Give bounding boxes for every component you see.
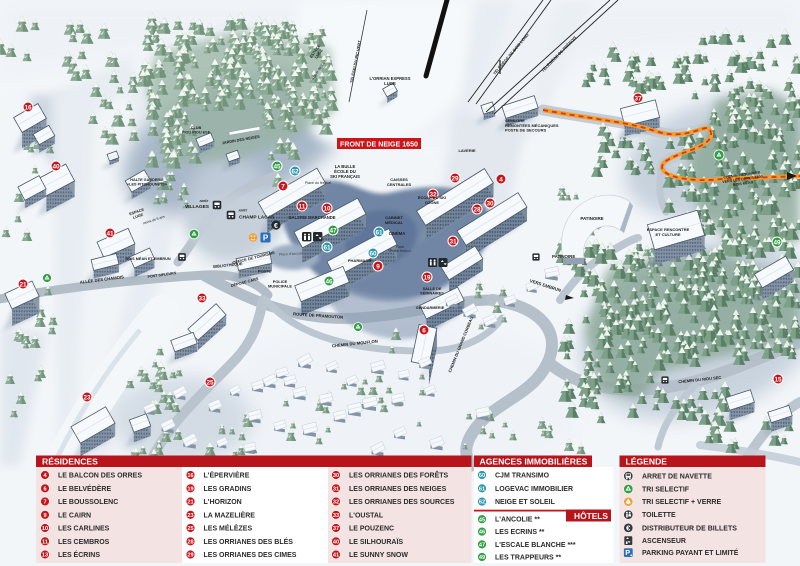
svg-text:21: 21 <box>187 500 193 506</box>
svg-text:6: 6 <box>422 327 426 334</box>
svg-text:32: 32 <box>333 500 339 506</box>
svg-text:BOIS MÉAN ET EMBRUN: BOIS MÉAN ET EMBRUN <box>125 256 170 261</box>
svg-text:L'HORIZON: L'HORIZON <box>204 499 242 506</box>
svg-text:37: 37 <box>634 95 642 102</box>
svg-text:LE POUZENC: LE POUZENC <box>349 526 394 533</box>
svg-text:POSTE: POSTE <box>258 269 272 274</box>
svg-text:60: 60 <box>369 250 377 257</box>
svg-text:LES ORRIANES DES NEIGES: LES ORRIANES DES NEIGES <box>349 486 447 493</box>
svg-text:37: 37 <box>333 526 339 532</box>
svg-text:62: 62 <box>479 500 485 506</box>
svg-text:47: 47 <box>479 543 485 549</box>
svg-text:PATINOIRE: PATINOIRE <box>580 216 603 221</box>
svg-text:4: 4 <box>499 176 503 183</box>
svg-text:NEIGE ET SOLEIL: NEIGE ET SOLEIL <box>495 499 556 506</box>
svg-text:61: 61 <box>479 486 485 492</box>
svg-text:16: 16 <box>187 473 193 479</box>
svg-text:7: 7 <box>43 500 46 506</box>
svg-text:€: € <box>274 223 278 230</box>
svg-text:HALTE GARDERIE«LES PITCHOUNETS: HALTE GARDERIE«LES PITCHOUNETS» <box>127 178 167 187</box>
svg-text:31: 31 <box>449 238 457 245</box>
svg-text:L'ESCALE BLANCHE ***: L'ESCALE BLANCHE *** <box>495 542 576 549</box>
svg-text:GENDARMERIE: GENDARMERIE <box>416 306 445 310</box>
svg-text:15: 15 <box>774 376 782 383</box>
svg-text:28: 28 <box>187 539 193 545</box>
svg-text:LES ORRIANES DES BLÉS: LES ORRIANES DES BLÉS <box>204 537 294 546</box>
svg-text:SALLE DESÉMINAIRES: SALLE DESÉMINAIRES <box>420 287 444 296</box>
svg-text:41: 41 <box>333 553 339 559</box>
svg-text:45: 45 <box>479 517 485 523</box>
svg-text:46: 46 <box>479 530 485 536</box>
svg-text:16: 16 <box>24 104 32 111</box>
svg-text:LE CAIRN: LE CAIRN <box>58 512 91 519</box>
svg-text:60: 60 <box>479 473 485 479</box>
svg-text:LES MÉLÈZES: LES MÉLÈZES <box>204 524 253 533</box>
svg-text:L'ÉPERVIÈRE: L'ÉPERVIÈRE <box>204 471 250 480</box>
svg-text:LE SUNNY SNOW: LE SUNNY SNOW <box>349 552 408 559</box>
svg-text:L'OUSTAL: L'OUSTAL <box>349 512 384 519</box>
svg-text:LE BELVÉDÈRE: LE BELVÉDÈRE <box>58 484 111 493</box>
svg-text:CJM TRANSIMO: CJM TRANSIMO <box>495 473 550 480</box>
svg-text:13: 13 <box>42 553 48 559</box>
svg-text:DISTRIBUTEUR DE BILLETS: DISTRIBUTEUR DE BILLETS <box>642 525 737 532</box>
svg-text:9: 9 <box>43 513 46 519</box>
svg-text:62: 62 <box>291 168 299 175</box>
svg-text:TRI SELECTIF: TRI SELECTIF <box>642 487 690 494</box>
svg-text:61: 61 <box>323 244 331 251</box>
svg-text:33: 33 <box>198 295 206 302</box>
svg-text:49: 49 <box>773 239 781 246</box>
svg-text:30: 30 <box>486 200 494 207</box>
svg-text:HÔTELS: HÔTELS <box>574 510 608 521</box>
svg-text:LOGEVAC IMMOBILIER: LOGEVAC IMMOBILIER <box>495 486 573 493</box>
svg-text:LES ORRIANES DES CIMES: LES ORRIANES DES CIMES <box>204 552 297 559</box>
svg-text:7: 7 <box>281 183 285 190</box>
svg-text:40: 40 <box>333 539 339 545</box>
svg-text:LES ECRINS **: LES ECRINS ** <box>495 529 545 536</box>
svg-text:P: P <box>625 548 630 557</box>
svg-text:LES ÉCRINS: LES ÉCRINS <box>58 550 100 559</box>
svg-text:6: 6 <box>43 486 46 492</box>
svg-text:RÉSIDENCES: RÉSIDENCES <box>42 457 98 467</box>
svg-text:11: 11 <box>299 203 306 210</box>
svg-text:PARKING PAYANT ET LIMITÉ: PARKING PAYANT ET LIMITÉ <box>642 548 739 557</box>
svg-text:CHAMP LACAS: CHAMP LACAS <box>239 215 275 221</box>
svg-text:29: 29 <box>451 175 459 182</box>
svg-text:21: 21 <box>19 281 27 288</box>
svg-text:31: 31 <box>333 486 339 492</box>
svg-text:CABINETMÉDICAL: CABINETMÉDICAL <box>385 215 404 225</box>
svg-text:30: 30 <box>333 473 339 479</box>
svg-text:PHARMACIE: PHARMACIE <box>348 258 373 263</box>
svg-text:LES CARLINES: LES CARLINES <box>58 526 110 533</box>
svg-text:LES TRAPPEURS **: LES TRAPPEURS ** <box>495 555 561 562</box>
svg-text:10: 10 <box>42 526 48 532</box>
svg-text:23: 23 <box>83 394 91 401</box>
svg-text:40: 40 <box>52 163 60 170</box>
svg-text:19: 19 <box>187 486 193 492</box>
svg-text:LAVERIE: LAVERIE <box>458 148 475 153</box>
svg-text:TOILETTE: TOILETTE <box>642 512 676 519</box>
svg-text:9: 9 <box>376 263 380 270</box>
svg-text:FRONT DE NEIGE 1650: FRONT DE NEIGE 1650 <box>340 139 418 148</box>
svg-text:LE BALCON DES ORRES: LE BALCON DES ORRES <box>58 473 142 480</box>
svg-text:45: 45 <box>273 163 281 170</box>
svg-text:LA MAZELIÈRE: LA MAZELIÈRE <box>204 510 256 519</box>
svg-text:GALERIE MARCHANDE: GALERIE MARCHANDE <box>288 215 335 220</box>
svg-text:10: 10 <box>323 205 331 212</box>
svg-text:LES GRADINS: LES GRADINS <box>204 486 252 493</box>
svg-text:PATINOIRE: PATINOIRE <box>552 254 575 259</box>
svg-text:49: 49 <box>479 555 485 561</box>
svg-text:47: 47 <box>329 227 337 234</box>
svg-text:25: 25 <box>187 526 193 532</box>
svg-text:29: 29 <box>187 553 193 559</box>
svg-text:P: P <box>263 234 269 243</box>
svg-text:25: 25 <box>206 379 214 386</box>
svg-text:TRI SELECTIF + VERRE: TRI SELECTIF + VERRE <box>642 499 721 506</box>
svg-text:LES CEMBROS: LES CEMBROS <box>58 539 110 546</box>
svg-text:LES ORRIANES DES SOURCES: LES ORRIANES DES SOURCES <box>349 499 455 506</box>
svg-text:AGENCES IMMOBILIÈRES: AGENCES IMMOBILIÈRES <box>480 457 588 467</box>
svg-text:Place du festival: Place du festival <box>305 181 331 185</box>
svg-text:23: 23 <box>187 513 193 519</box>
svg-text:41: 41 <box>106 230 114 237</box>
svg-text:LE BOUSSOLENC: LE BOUSSOLENC <box>58 499 118 506</box>
svg-text:28: 28 <box>473 206 481 213</box>
svg-text:CINÉMA: CINÉMA <box>389 231 406 236</box>
svg-text:ARRET DE NAVETTE: ARRET DE NAVETTE <box>642 474 712 481</box>
svg-text:VILLAGES: VILLAGES <box>185 204 210 210</box>
svg-text:L'ANCOLIE **: L'ANCOLIE ** <box>495 517 540 524</box>
svg-text:33: 33 <box>333 513 339 519</box>
svg-text:LE SILHOURAÏS: LE SILHOURAÏS <box>349 538 403 546</box>
svg-text:46: 46 <box>325 278 333 285</box>
svg-text:11: 11 <box>42 539 48 545</box>
svg-text:61: 61 <box>375 229 383 236</box>
svg-text:LES ORRIANES DES FORÊTS: LES ORRIANES DES FORÊTS <box>349 471 449 480</box>
svg-text:19: 19 <box>423 274 431 281</box>
svg-text:LÉGENDE: LÉGENDE <box>626 457 668 467</box>
svg-text:ASCENSEUR: ASCENSEUR <box>642 538 686 545</box>
